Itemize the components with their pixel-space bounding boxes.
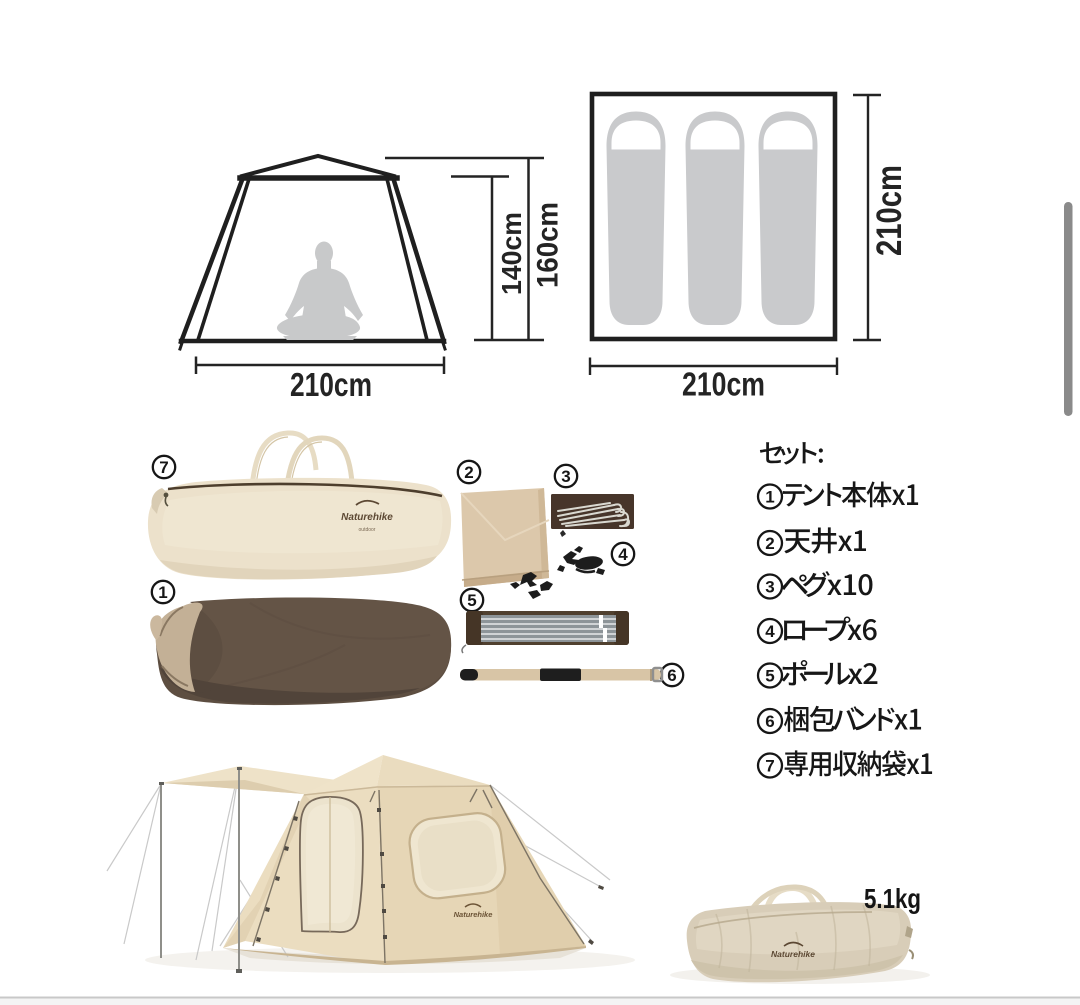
svg-text:140cm: 140cm — [496, 212, 527, 295]
svg-text:3: 3 — [765, 578, 774, 597]
svg-text:outdoor: outdoor — [359, 527, 376, 533]
svg-text:5: 5 — [765, 667, 774, 686]
svg-text:210cm: 210cm — [870, 165, 909, 256]
svg-text:5: 5 — [467, 591, 476, 610]
svg-text:160cm: 160cm — [532, 202, 565, 288]
svg-text:6: 6 — [667, 666, 676, 685]
svg-text:210cm: 210cm — [682, 366, 765, 403]
svg-text:Naturehike: Naturehike — [341, 512, 393, 523]
svg-text:2: 2 — [765, 534, 774, 553]
svg-text:Naturehike: Naturehike — [771, 949, 815, 959]
svg-text:4: 4 — [618, 545, 628, 564]
svg-text:2: 2 — [464, 463, 473, 482]
svg-text:3: 3 — [561, 467, 570, 486]
svg-text:7: 7 — [765, 757, 774, 776]
svg-text:4: 4 — [765, 622, 775, 641]
svg-text:5.1kg: 5.1kg — [864, 883, 921, 914]
svg-text:7: 7 — [159, 458, 168, 477]
svg-text:1: 1 — [158, 583, 167, 602]
svg-text:Naturehike: Naturehike — [454, 910, 493, 919]
svg-text:1: 1 — [765, 488, 774, 507]
svg-text:6: 6 — [765, 712, 774, 731]
svg-text:210cm: 210cm — [290, 366, 372, 403]
